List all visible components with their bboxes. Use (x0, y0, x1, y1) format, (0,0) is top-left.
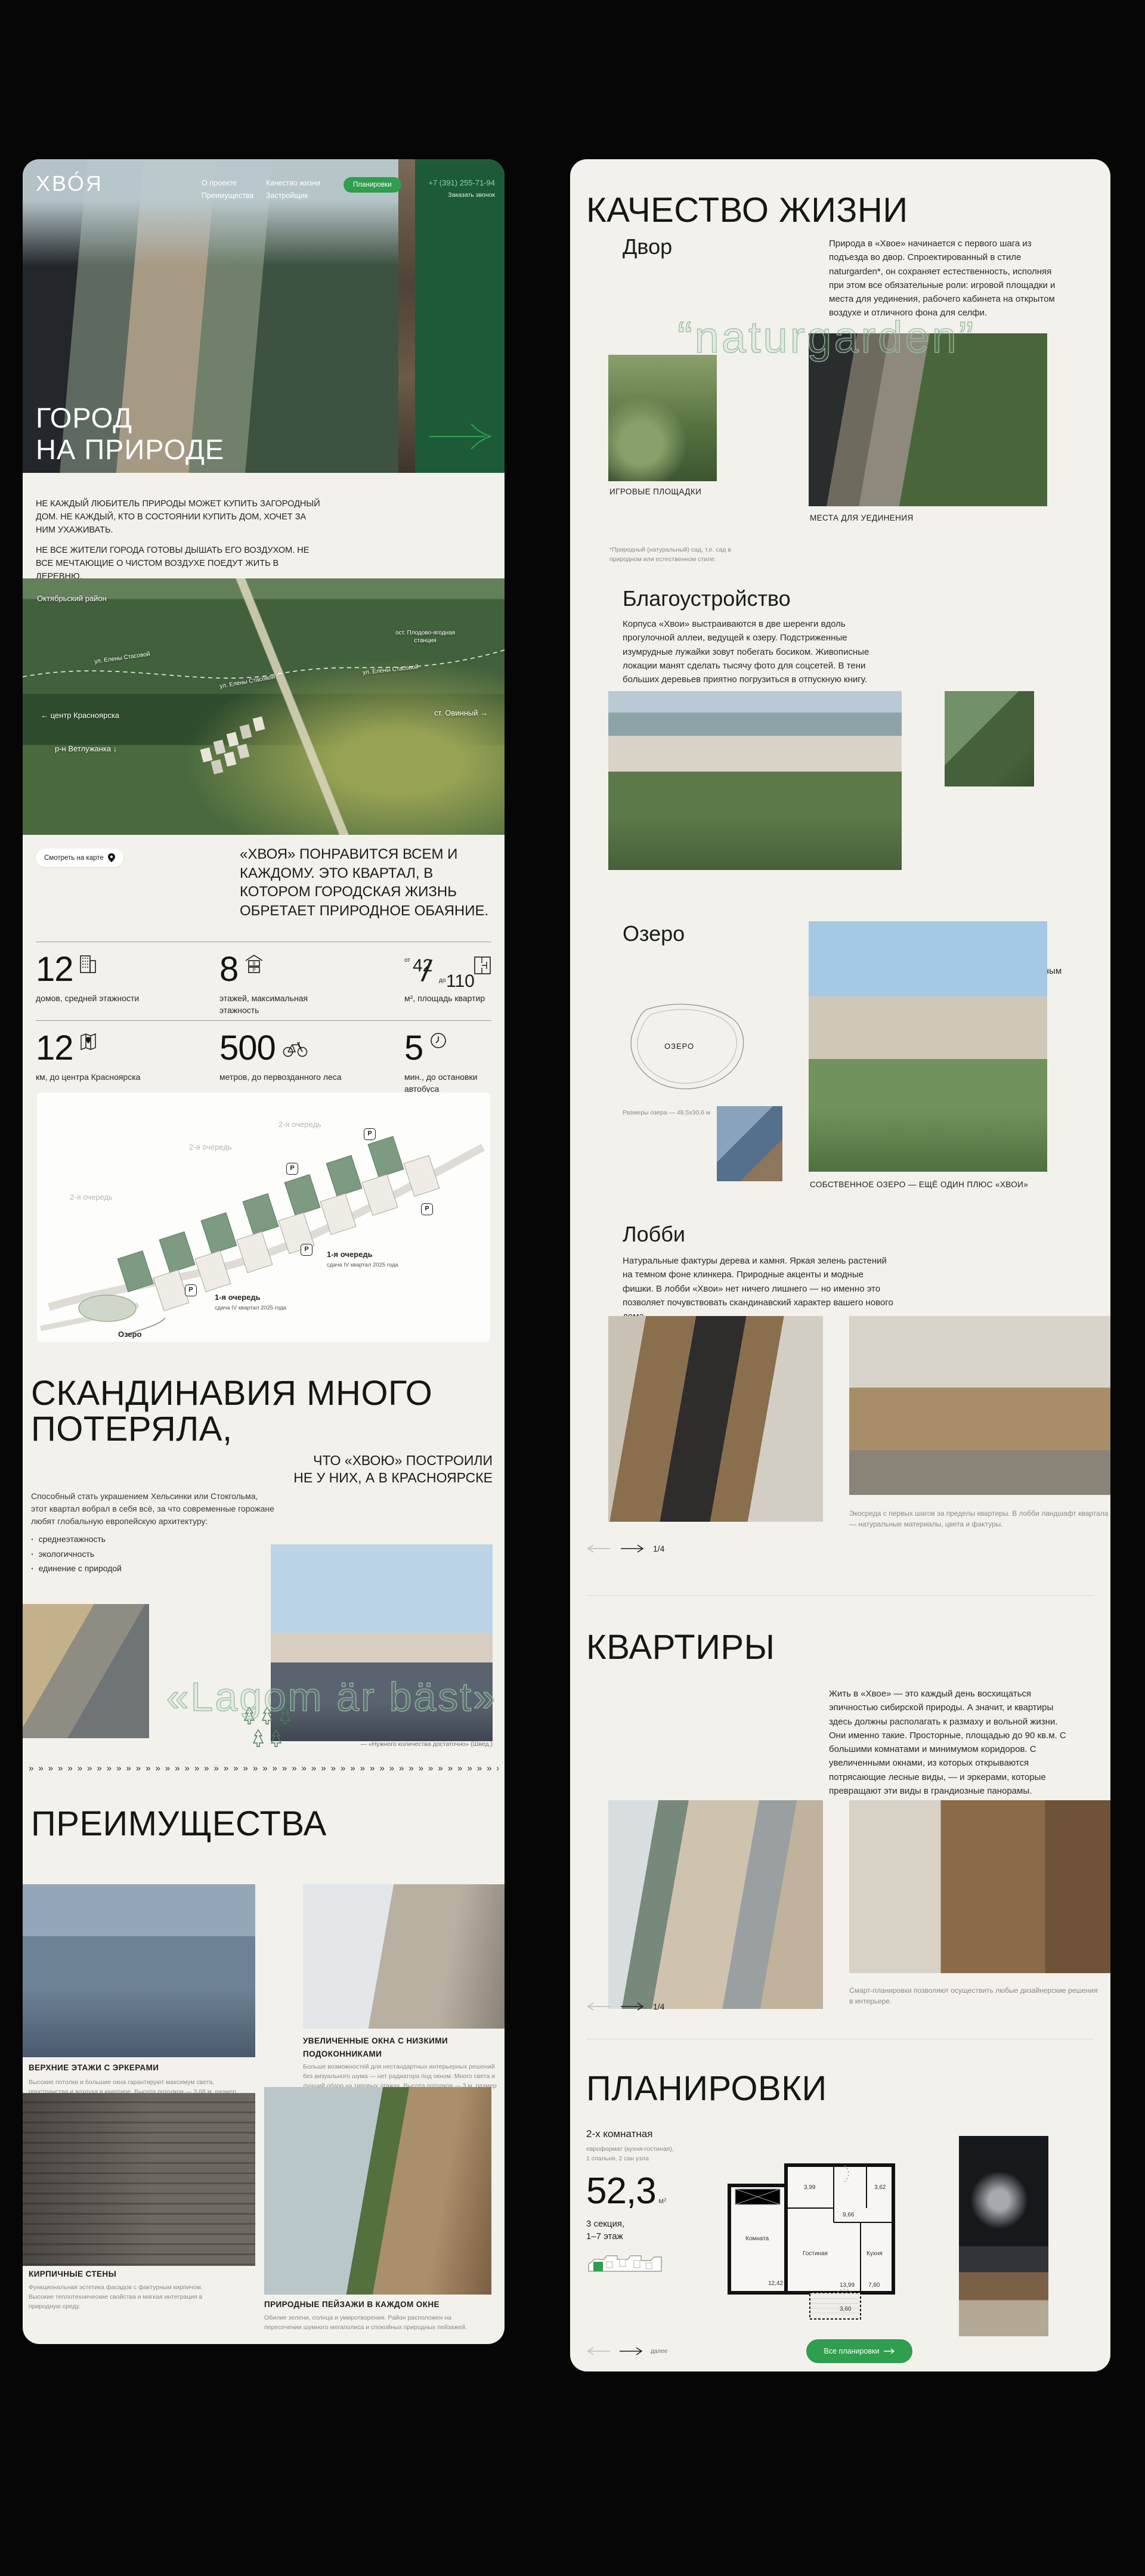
buildings-cluster (200, 716, 265, 774)
lake-sketch: ОЗЕРО (623, 999, 754, 1097)
advantage-photo-4 (264, 2087, 491, 2295)
nav-about[interactable]: О проекте (202, 177, 253, 190)
stat-area-from: от (404, 957, 410, 964)
scandinavia-subtitle-line1: ЧТО «ХВОЮ» ПОСТРОИЛИ (249, 1452, 493, 1469)
lake-title: Озеро (623, 921, 685, 946)
advantages-title: ПРЕИМУЩЕСТВА (31, 1806, 327, 1842)
advantage-photo-3 (23, 2093, 255, 2266)
plan-area-unit: м² (658, 2196, 666, 2205)
advantage-photo-1 (23, 1884, 255, 2057)
parking-badge-2: P (286, 1163, 298, 1175)
slider-prev-icon[interactable] (586, 2002, 611, 2011)
plan-area-value: 52,3 (586, 2171, 656, 2212)
stat-floors-value: 8 (219, 952, 238, 987)
advantage-title-2: УВЕЛИЧЕННЫЕ ОКНА С НИЗКИМИ ПОДОКОННИКАМИ (303, 2035, 482, 2060)
stat-forest-value: 500 (219, 1031, 276, 1066)
plan-format-line2: 1 спальня, 2 сан узла (586, 2154, 674, 2164)
masterplan-phase2-label-1: 2-я очередь (278, 1120, 321, 1129)
scandinavia-subtitle-line2: НЕ У НИХ, А В КРАСНОЯРСКЕ (249, 1469, 493, 1487)
apartments-slider-controls: 1/4 (586, 2002, 664, 2011)
lake-sketch-label: ОЗЕРО (664, 1042, 694, 1051)
apartments-title: КВАРТИРЫ (586, 1630, 775, 1665)
svg-text:3,60: 3,60 (840, 2306, 852, 2312)
landscaping-title: Благоустройство (623, 586, 791, 611)
plan-type: 2-х комнатная (586, 2128, 652, 2140)
yard-caption-2: МЕСТА ДЛЯ УЕДИНЕНИЯ (810, 513, 914, 522)
advantage-text-3: Функциональная эстетика фасадов с фактур… (29, 2283, 225, 2311)
callback-link[interactable]: Заказать звонок (415, 191, 495, 199)
masterplan-phase1-label-2: 1-я очередь (215, 1293, 261, 1302)
stat-area-label: м², площадь квартир (404, 993, 494, 1005)
lake-size-note: Размеры озера — 48,5х30,6 м (623, 1109, 710, 1118)
section-diagram[interactable] (586, 2250, 664, 2276)
map-label-bus-stop: ост. Плодово-ягодная станция (392, 630, 458, 645)
location-quote: «ХВОЯ» ПОНРАВИТСЯ ВСЕМ И КАЖДОМУ. ЭТО КВ… (240, 845, 493, 921)
svg-text:7,60: 7,60 (868, 2282, 880, 2289)
logo[interactable]: ХВО́Я (36, 171, 103, 196)
lobby-slider-controls: 1/4 (586, 1544, 664, 1553)
plans-title: ПЛАНИРОВКИ (586, 2071, 827, 2107)
map-label-district: Октябрьский район (37, 594, 109, 603)
svg-text:P: P (253, 968, 256, 973)
plan-section-line2: 1–7 этаж (586, 2230, 624, 2243)
lake-caption: СОБСТВЕННОЕ ОЗЕРО — ЕЩЁ ОДИН ПЛЮС «ХВОИ» (810, 1180, 1028, 1189)
scandinavia-bullet-1: среднеэтажность (31, 1532, 122, 1547)
lagom-watermark: «Lagom är bäst» (100, 1674, 497, 1720)
plan-bedroom-photo (959, 2136, 1048, 2336)
parking-badge-1: P (364, 1128, 376, 1140)
masterplan-phase2-label-3: 2-я очередь (70, 1193, 113, 1202)
masterplan-phase2-label-2: 2-я очередь (189, 1143, 232, 1151)
svg-text:3,62: 3,62 (874, 2184, 886, 2191)
hero-arrow-icon[interactable] (428, 422, 494, 451)
advantage-photo-2 (303, 1884, 505, 2029)
parking-badge-3: P (421, 1203, 433, 1215)
svg-text:Кухня: Кухня (867, 2250, 883, 2257)
lake-photo-main (809, 921, 1047, 1172)
yard-text: Природа в «Хвое» начинается с первого ша… (829, 237, 1063, 320)
svg-text:8: 8 (253, 961, 256, 967)
lobby-caption: Экосреда с первых шагов за пределы кварт… (849, 1508, 1109, 1529)
lobby-photo-1 (608, 1316, 823, 1522)
advantage-title-3: КИРПИЧНЫЕ СТЕНЫ (29, 2270, 116, 2278)
nav-developer[interactable]: Застройщик (266, 190, 320, 202)
masterplan-phase1-note-1: сдача IV квартал 2025 года (327, 1262, 398, 1268)
svg-text:3,99: 3,99 (804, 2184, 816, 2191)
phone-link[interactable]: +7 (391) 255-71-94 (415, 178, 495, 187)
apartments-caption: Смарт-планировки позволяют осуществить л… (849, 1985, 1100, 2007)
stat-area-max: 110 (446, 971, 475, 992)
nav-advantages[interactable]: Преимущества (202, 190, 253, 202)
landscaping-photo-small (945, 691, 1034, 787)
advantage-title-4: ПРИРОДНЫЕ ПЕЙЗАЖИ В КАЖДОМ ОКНЕ (264, 2300, 440, 2309)
aerial-location-photo: Октябрьский район ул. Елены Стасовой ул.… (23, 578, 505, 835)
section-highlight (593, 2262, 603, 2271)
svg-text:13,99: 13,99 (840, 2282, 855, 2289)
map-icon (79, 1032, 97, 1051)
yard-footnote: *Природный (натуральный) сад, т.е. сад в… (609, 546, 751, 565)
parking-badge-5: P (185, 1284, 197, 1296)
apartments-text: Жить в «Хвое» — это каждый день восхищат… (829, 1687, 1067, 1798)
nav-quality[interactable]: Качество жизни (266, 177, 320, 190)
slider-next-icon[interactable] (620, 2002, 645, 2011)
svg-text:Гостиная: Гостиная (803, 2250, 828, 2257)
svg-text:9,66: 9,66 (843, 2212, 855, 2218)
naturgarden-watermark: “naturgarden” (677, 312, 1059, 363)
map-label-vetluzhanka: р-н Ветлужанка ↓ (55, 744, 117, 754)
floorplan-icon (474, 956, 491, 975)
map-label-ovinny: ст. Овинный → (434, 708, 488, 718)
main-page-panel: ХВО́Я О проекте Преимущества Качество жи… (23, 159, 505, 2344)
bicycle-icon (283, 1039, 308, 1057)
plan-format-line1: евроформат (кухня-гостиная), (586, 2145, 674, 2154)
landscaping-text: Корпуса «Хвои» выстраиваются в две шерен… (623, 617, 878, 686)
lobby-text: Натуральные фактуры дерева и камня. Ярка… (623, 1254, 895, 1323)
plans-next-label: далее (651, 2348, 667, 2355)
stat-floors-label: этажей, максимальная этажность (219, 993, 345, 1016)
scandinavia-title-line2: ПОТЕРЯЛА, (31, 1411, 432, 1447)
scandinavia-bullet-3: единение с природой (31, 1561, 122, 1576)
map-link-label: Смотреть на карте (44, 854, 104, 862)
yard-title: Двор (623, 234, 672, 259)
apartment-photo-2 (849, 1800, 1110, 1973)
arrow-right-icon (884, 2348, 895, 2354)
advantage-text-4: Обилие зелени, солнца и умиротворения. Р… (264, 2314, 485, 2333)
masterplan: 2-я очередь 2-я очередь 2-я очередь 1-я … (37, 1092, 490, 1342)
lake-photo-portrait (717, 1106, 782, 1181)
stat-bus-label: мин., до остановки автобуса (404, 1072, 494, 1095)
stat-distance-label: км, до центра Красноярска (36, 1072, 149, 1083)
stat-bus-value: 5 (404, 1031, 423, 1066)
slider-prev-icon[interactable] (586, 1544, 611, 1553)
location-pin-icon (108, 853, 115, 862)
yard-photo-playground (608, 355, 717, 481)
lagom-note: — «Нужного количества достаточно» (Швед.… (273, 1741, 493, 1748)
slider-next-icon[interactable] (618, 2346, 643, 2356)
parking-badge-4: P (301, 1244, 312, 1256)
stat-forest-label: метров, до первозданного леса (219, 1072, 345, 1083)
slider-prev-icon[interactable] (586, 2346, 611, 2356)
hero-title-line1: ГОРОД (36, 402, 224, 434)
scandinavia-text: Способный стать украшением Хельсинки или… (31, 1490, 276, 1528)
intro-paragraph-2: НЕ ВСЕ ЖИТЕЛИ ГОРОДА ГОТОВЫ ДЫШАТЬ ЕГО В… (36, 544, 322, 583)
stat-houses-label: домов, средней этажности (36, 993, 149, 1005)
zigzag-divider: »»»»»»»»»»»»»»»»»»»»»»»»»»»»»»»»»»»»»»»»… (29, 1763, 499, 1773)
scandinavia-bullet-2: экологичность (31, 1547, 122, 1562)
lobby-slider-page: 1/4 (653, 1544, 664, 1553)
slider-next-icon[interactable] (620, 1544, 645, 1553)
map-label-city-center: ← центр Красноярска (41, 711, 119, 720)
advantage-title-1: ВЕРХНИЕ ЭТАЖИ С ЭРКЕРАМИ (29, 2063, 159, 2072)
nav-plans-button[interactable]: Планировки (343, 177, 401, 193)
quality-title: КАЧЕСТВО ЖИЗНИ (586, 193, 908, 228)
plan-section-line1: 3 секция, (586, 2218, 624, 2230)
landscaping-photo-main (608, 691, 902, 870)
plans-slider-controls: далее (586, 2346, 667, 2356)
intro-paragraph-1: НЕ КАЖДЫЙ ЛЮБИТЕЛЬ ПРИРОДЫ МОЖЕТ КУПИТЬ … (36, 498, 322, 537)
building-icon (79, 953, 97, 974)
all-plans-label: Все планировки (824, 2347, 880, 2355)
floors-icon: 8 P (244, 953, 264, 974)
all-plans-button[interactable]: Все планировки (806, 2339, 912, 2363)
stat-distance-value: 12 (36, 1031, 73, 1066)
apartments-slider-page: 1/4 (653, 2002, 664, 2011)
apartment-photo-1 (608, 1800, 823, 2009)
svg-text:12,42: 12,42 (768, 2280, 783, 2287)
lobby-title: Лобби (623, 1222, 685, 1247)
quality-page-panel: КАЧЕСТВО ЖИЗНИ Двор Природа в «Хвое» нач… (570, 159, 1110, 2371)
map-link-button[interactable]: Смотреть на карте (36, 849, 123, 867)
lobby-photo-2 (849, 1316, 1110, 1495)
scandinavia-title-line1: СКАНДИНАВИЯ МНОГО (31, 1376, 432, 1411)
masterplan-phase1-label-1: 1-я очередь (327, 1250, 373, 1259)
svg-text:Комната: Комната (745, 2236, 769, 2242)
yard-caption-1: ИГРОВЫЕ ПЛОЩАДКИ (609, 487, 701, 496)
bark-texture-strip (398, 159, 415, 473)
stat-houses-value: 12 (36, 952, 73, 987)
masterplan-phase1-note-2: сдача IV квартал 2025 года (215, 1305, 286, 1311)
clock-icon (430, 1032, 447, 1049)
masterplan-lake-label: Озеро (118, 1330, 142, 1339)
floor-plan: Комната 12,42 Гостиная 13,99 Кухня 7,60 … (720, 2151, 899, 2330)
stat-area-to: до (439, 977, 445, 984)
hero-title-line2: НА ПРИРОДЕ (36, 434, 224, 466)
